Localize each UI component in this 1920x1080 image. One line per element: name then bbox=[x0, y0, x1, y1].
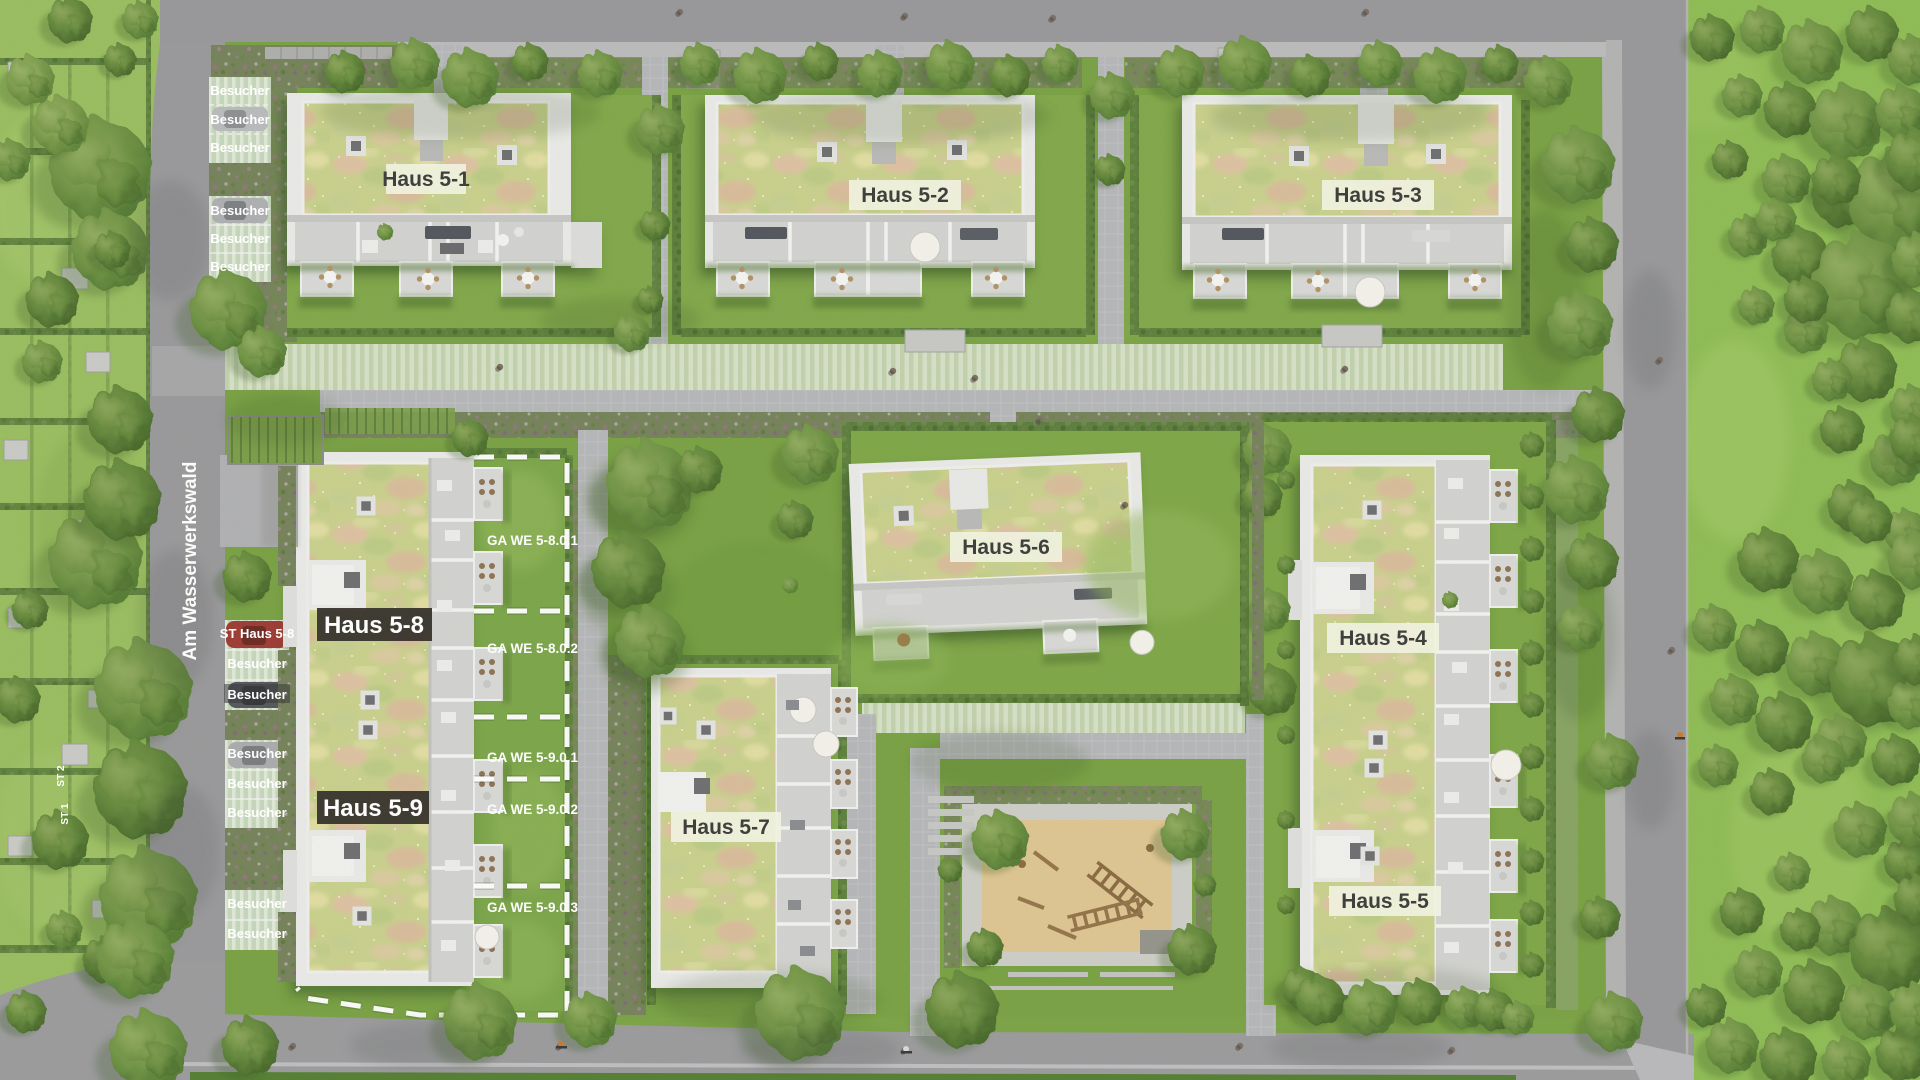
svg-text:Besucher: Besucher bbox=[210, 140, 269, 155]
svg-text:Besucher: Besucher bbox=[210, 259, 269, 274]
svg-text:Besucher: Besucher bbox=[210, 83, 269, 98]
svg-text:Besucher: Besucher bbox=[210, 203, 269, 218]
svg-text:ST Haus 5-8: ST Haus 5-8 bbox=[220, 626, 294, 641]
svg-text:Besucher: Besucher bbox=[210, 231, 269, 246]
svg-text:Besucher: Besucher bbox=[227, 746, 286, 761]
svg-text:Besucher: Besucher bbox=[227, 687, 286, 702]
svg-text:Besucher: Besucher bbox=[210, 112, 269, 127]
svg-text:Besucher: Besucher bbox=[227, 776, 286, 791]
svg-text:Besucher: Besucher bbox=[227, 926, 286, 941]
svg-text:Am Wasserwerkswald: Am Wasserwerkswald bbox=[180, 462, 201, 661]
svg-text:ST 2: ST 2 bbox=[56, 765, 67, 787]
svg-text:ST 1: ST 1 bbox=[60, 803, 71, 825]
svg-text:Besucher: Besucher bbox=[227, 656, 286, 671]
svg-text:Besucher: Besucher bbox=[227, 896, 286, 911]
svg-text:Besucher: Besucher bbox=[227, 805, 286, 820]
